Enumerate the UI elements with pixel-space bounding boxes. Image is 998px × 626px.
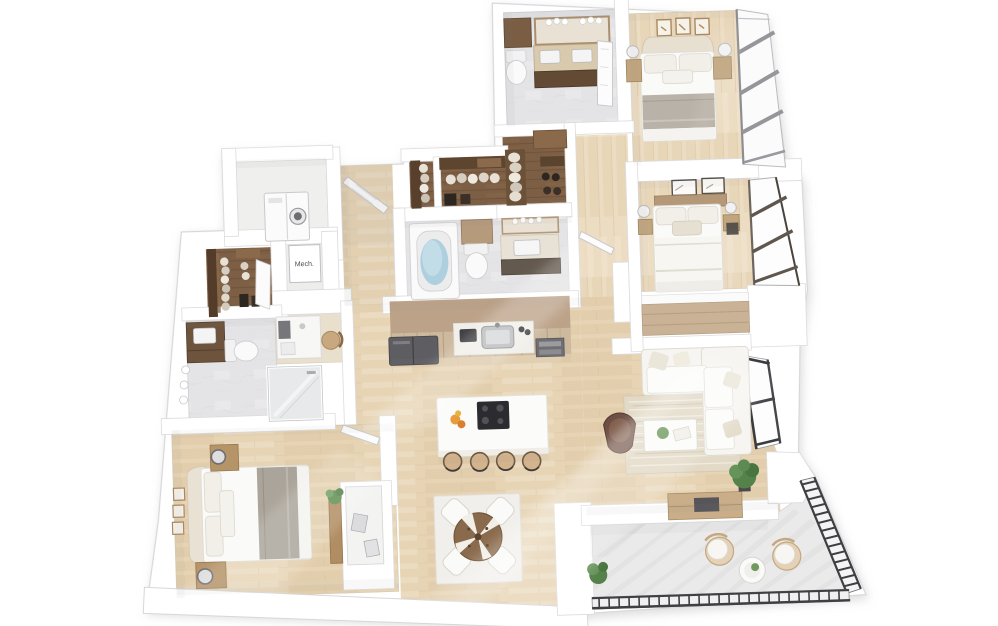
svg-text:Mech.: Mech. xyxy=(295,261,314,269)
